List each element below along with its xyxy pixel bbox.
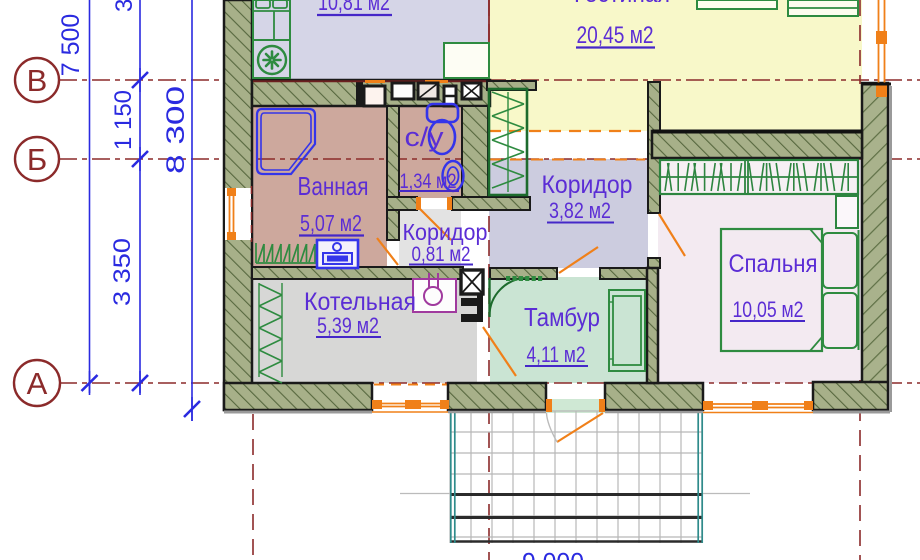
svg-text:Б: Б — [27, 142, 47, 177]
svg-text:В: В — [27, 63, 48, 98]
svg-text:5,07 м2: 5,07 м2 — [300, 210, 362, 236]
svg-text:3 350: 3 350 — [109, 238, 136, 306]
svg-text:Спальня: Спальня — [729, 250, 818, 278]
svg-text:с/у: с/у — [405, 122, 445, 152]
svg-text:1 150: 1 150 — [110, 90, 137, 150]
svg-text:8 300: 8 300 — [162, 86, 190, 174]
svg-text:Коридор: Коридор — [403, 219, 488, 245]
svg-text:0,81 м2: 0,81 м2 — [412, 243, 471, 266]
svg-text:20,45 м2: 20,45 м2 — [577, 22, 654, 49]
svg-text:3 500: 3 500 — [111, 0, 138, 12]
svg-text:А: А — [27, 366, 48, 401]
svg-text:5,39 м2: 5,39 м2 — [317, 313, 379, 338]
svg-text:7 500: 7 500 — [57, 14, 85, 77]
svg-text:9 000: 9 000 — [522, 547, 584, 560]
svg-text:Коридор: Коридор — [542, 171, 633, 199]
svg-text:Гостиная: Гостиная — [574, 0, 670, 8]
svg-text:10,81 м2: 10,81 м2 — [318, 0, 390, 15]
svg-text:10,05 м2: 10,05 м2 — [733, 297, 804, 322]
svg-text:Ванная: Ванная — [298, 171, 369, 201]
svg-text:Тамбур: Тамбур — [524, 302, 600, 332]
svg-text:3,82 м2: 3,82 м2 — [549, 198, 611, 223]
svg-text:4,11 м2: 4,11 м2 — [527, 342, 586, 367]
svg-text:Котельная: Котельная — [304, 288, 416, 316]
svg-text:1,34 м2: 1,34 м2 — [400, 170, 457, 193]
